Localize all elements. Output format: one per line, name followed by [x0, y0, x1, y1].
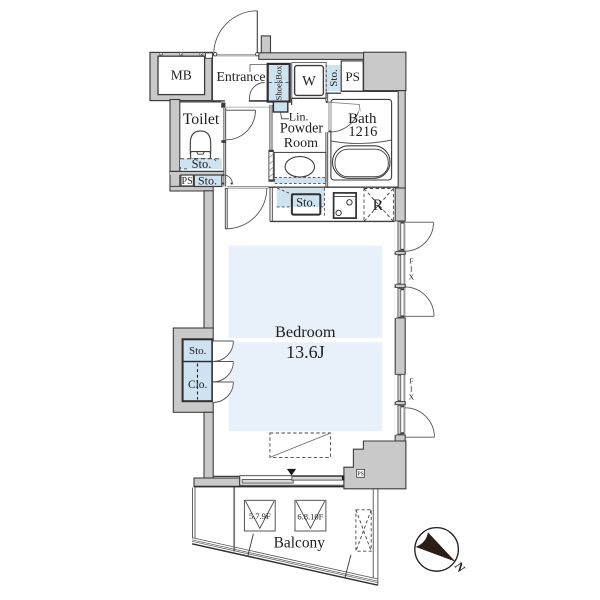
svg-text:PS: PS: [182, 176, 193, 187]
svg-text:MB: MB: [171, 68, 192, 83]
svg-text:PS: PS: [357, 472, 364, 478]
svg-text:W: W: [302, 74, 316, 90]
svg-text:13.6J: 13.6J: [286, 342, 325, 362]
svg-text:Balcony: Balcony: [274, 535, 326, 552]
svg-text:Powder: Powder: [280, 121, 324, 137]
svg-text:5.7.9F: 5.7.9F: [249, 511, 271, 521]
svg-text:R: R: [373, 197, 384, 214]
svg-text:Sto.: Sto.: [192, 157, 212, 171]
svg-text:Sto.: Sto.: [328, 69, 340, 87]
svg-text:Clo.: Clo.: [188, 379, 208, 391]
svg-text:X: X: [409, 393, 415, 402]
svg-text:ShoesBox: ShoesBox: [274, 65, 284, 101]
svg-text:Sto.: Sto.: [198, 174, 217, 188]
svg-text:Entrance: Entrance: [216, 69, 265, 84]
svg-text:X: X: [409, 273, 415, 282]
svg-text:Room: Room: [284, 136, 318, 151]
svg-text:1216: 1216: [348, 124, 377, 140]
svg-text:PS: PS: [345, 69, 359, 84]
svg-text:Sto.: Sto.: [189, 345, 207, 357]
svg-text:Toilet: Toilet: [183, 111, 220, 128]
svg-text:Bedroom: Bedroom: [275, 322, 336, 341]
svg-text:Sto.: Sto.: [296, 195, 316, 209]
svg-text:6.8.10F: 6.8.10F: [297, 511, 323, 521]
